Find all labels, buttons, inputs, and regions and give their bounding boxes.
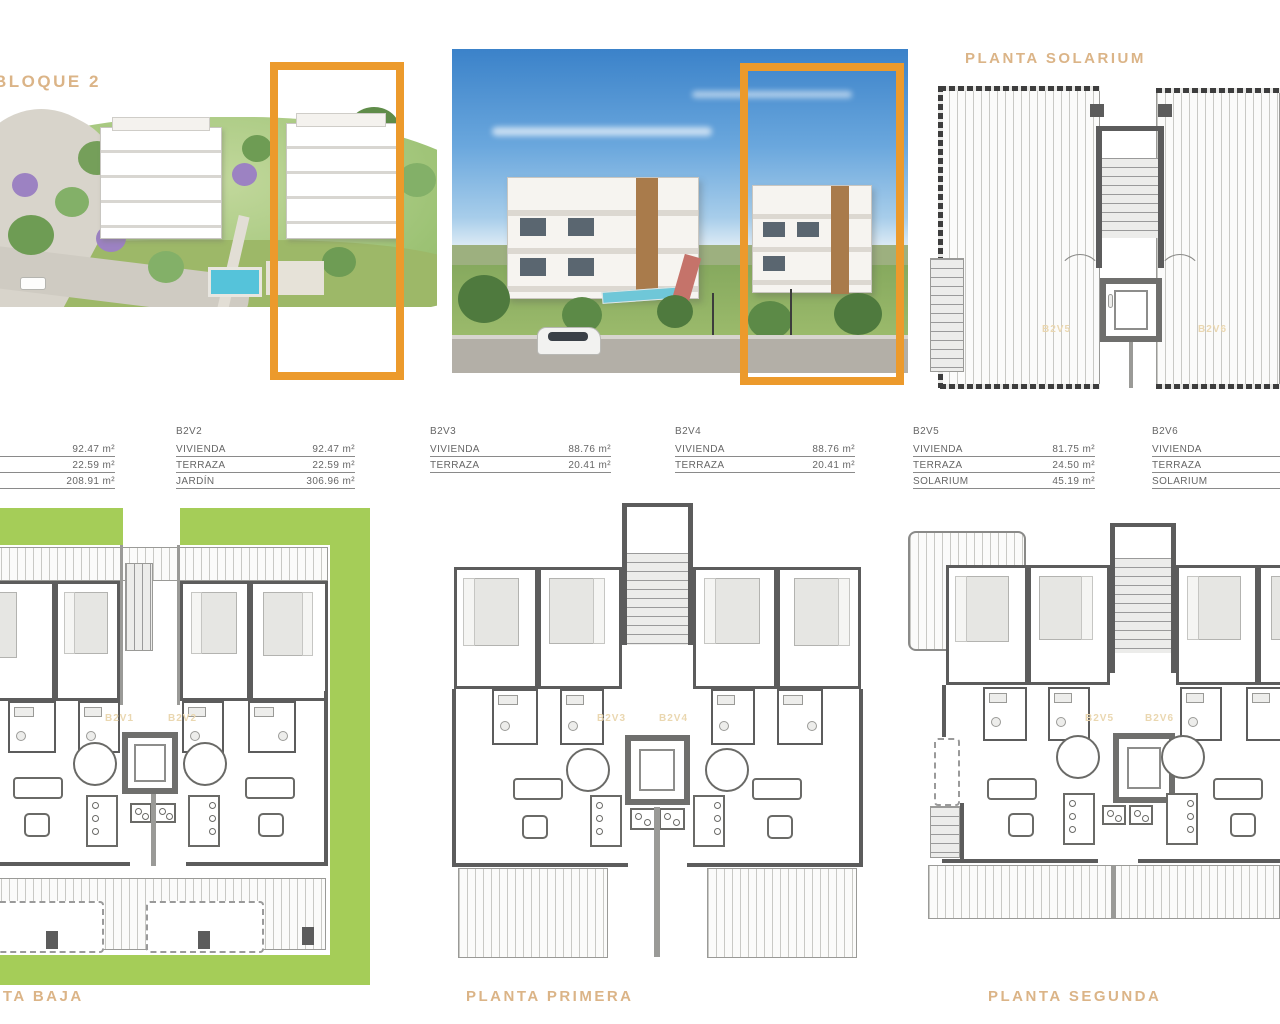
row-label: VIVIENDA: [1152, 444, 1202, 455]
unit-label: B2V6: [1145, 713, 1174, 724]
terrace-divider: [1111, 865, 1116, 919]
row-label: TERRAZA: [1152, 460, 1201, 471]
flowering-bush: [12, 173, 38, 197]
row-value: 88.76 m²: [568, 444, 611, 455]
stove-counter: [1129, 805, 1153, 825]
sofa: [13, 777, 63, 799]
unit-table-b2v3: B2V3 VIVIENDA88.76 m² TERRAZA20.41 m²: [430, 426, 611, 473]
toilet-fixture: [1108, 294, 1113, 308]
bathroom: [492, 689, 538, 745]
second-floor-title: PLANTA SEGUNDA: [988, 988, 1161, 1005]
unit-table-name: B2V6: [1152, 426, 1280, 441]
table-row: 22.59 m²: [0, 457, 115, 473]
table-row: 92.47 m²: [0, 441, 115, 457]
row-label: JARDÍN: [176, 476, 215, 487]
row-label: SOLARIUM: [913, 476, 968, 487]
unit-label: B2V5: [1042, 324, 1071, 335]
row-label: TERRAZA: [913, 460, 962, 471]
terrace: [458, 868, 608, 958]
unit-label: B2V4: [659, 713, 688, 724]
unit-table-name: B2V5: [913, 426, 1095, 441]
ground-floor-title: PLANTA BAJA: [0, 988, 84, 1005]
outer-wall: [452, 689, 456, 867]
unit-label: B2V3: [597, 713, 626, 724]
corridor-wall: [120, 545, 123, 705]
row-label: TERRAZA: [430, 460, 479, 471]
tree: [242, 135, 272, 162]
armchair: [1230, 813, 1256, 837]
bedroom: [250, 581, 328, 701]
brochure-page: { "headings": { "block": "BLOQUE 2", "so…: [0, 0, 1280, 1024]
bedroom: [946, 565, 1028, 685]
bathroom: [777, 689, 823, 745]
dining-table: [1161, 735, 1205, 779]
divider-wall: [151, 794, 156, 866]
row-value: 208.91 m²: [66, 476, 115, 487]
row-label: TERRAZA: [176, 460, 225, 471]
staircase: [1115, 558, 1171, 653]
second-floor-plan: B2V5 B2V6: [898, 503, 1280, 973]
bathroom: [248, 701, 296, 753]
table-row: VIVIENDA88.76 m²: [675, 441, 855, 457]
table-row: TERRAZA24.50 m²: [913, 457, 1095, 473]
full-width-terrace: [928, 865, 1280, 919]
roof-terrace: [940, 88, 1100, 388]
dining-table: [183, 742, 227, 786]
row-value: 20.41 m²: [568, 460, 611, 471]
swimming-pool: [208, 267, 262, 297]
stove-counter: [630, 808, 656, 830]
stair-tower-wall: [622, 503, 693, 507]
unit-label: B2V5: [1085, 713, 1114, 724]
row-label: VIVIENDA: [176, 444, 226, 455]
armchair: [1008, 813, 1034, 837]
sofa: [987, 778, 1037, 800]
unit-label: B2V6: [1198, 324, 1227, 335]
elevator-shaft: [122, 732, 178, 794]
bathroom: [1180, 687, 1222, 741]
wood-accent-column: [636, 178, 658, 300]
kitchen-island: [590, 795, 622, 847]
unit-table-name: B2V4: [675, 426, 855, 441]
divider-wall: [654, 807, 660, 957]
outer-wall: [687, 863, 863, 867]
bathroom: [1246, 687, 1280, 741]
gate-post: [198, 931, 210, 949]
window: [520, 218, 546, 236]
outer-wall: [0, 862, 130, 866]
stove-counter: [1102, 805, 1126, 825]
solarium-floor-plan: B2V5 B2V6: [930, 78, 1280, 396]
row-value: 81.75 m²: [1052, 444, 1095, 455]
unit-table-b2v5: B2V5 VIVIENDA81.75 m² TERRAZA24.50 m² SO…: [913, 426, 1095, 489]
stove-counter: [659, 808, 685, 830]
row-label: VIVIENDA: [430, 444, 480, 455]
outer-wall: [324, 691, 328, 866]
stairwell-wall: [1096, 126, 1164, 131]
unit-table-b2v6-cropped: B2V6 VIVIENDA TERRAZA SOLARIUM: [1152, 426, 1280, 489]
corridor-wall: [177, 545, 180, 705]
unit-table-cropped: 92.47 m² 22.59 m² 208.91 m²: [0, 426, 115, 489]
bedroom: [180, 581, 250, 701]
unit-label: B2V1: [105, 713, 134, 724]
window: [568, 218, 594, 236]
bedroom: [0, 581, 55, 701]
window: [568, 258, 594, 276]
row-value: 306.96 m²: [306, 476, 355, 487]
stove-counter: [154, 803, 176, 823]
stairwell-wall: [1110, 523, 1176, 527]
external-staircase: [930, 258, 964, 372]
armchair: [522, 815, 548, 839]
gate-post: [46, 931, 58, 949]
block-title: BLOQUE 2: [0, 72, 101, 92]
lamp-post: [712, 293, 714, 337]
entrance-path: [123, 508, 180, 545]
parapet-wall: [940, 86, 1100, 91]
front-terrace: [0, 547, 328, 581]
kitchen-island: [1166, 793, 1198, 845]
row-value: 92.47 m²: [72, 444, 115, 455]
tree: [8, 215, 54, 255]
staircase: [125, 563, 153, 651]
outer-wall: [1138, 859, 1280, 863]
dining-table: [1056, 735, 1100, 779]
row-value: 24.50 m²: [1052, 460, 1095, 471]
bedroom: [454, 567, 538, 689]
bathroom: [8, 701, 56, 753]
flowering-bush: [232, 163, 257, 186]
table-row: VIVIENDA: [1152, 441, 1280, 457]
kitchen-island: [188, 795, 220, 847]
row-value: 92.47 m²: [312, 444, 355, 455]
sofa: [752, 778, 802, 800]
table-row: VIVIENDA92.47 m²: [176, 441, 355, 457]
row-value: 88.76 m²: [812, 444, 855, 455]
bathroom: [711, 689, 755, 745]
dining-table: [73, 742, 117, 786]
staircase: [1102, 158, 1158, 238]
dining-table: [566, 748, 610, 792]
elevator-car: [1114, 290, 1148, 330]
row-value: 45.19 m²: [1052, 476, 1095, 487]
table-row: VIVIENDA81.75 m²: [913, 441, 1095, 457]
table-row: 208.91 m²: [0, 473, 115, 489]
stairwell-wall: [1158, 126, 1164, 268]
outer-wall: [186, 862, 328, 866]
unit-label: B2V2: [168, 713, 197, 724]
table-row: VIVIENDA88.76 m²: [430, 441, 611, 457]
highlight-rectangle: [270, 62, 404, 380]
row-label: SOLARIUM: [1152, 476, 1207, 487]
highlight-rectangle: [740, 63, 904, 385]
tree: [55, 187, 89, 217]
row-label: VIVIENDA: [913, 444, 963, 455]
outer-wall: [452, 863, 628, 867]
unit-table-name: B2V3: [430, 426, 611, 441]
table-row: JARDÍN306.96 m²: [176, 473, 355, 489]
table-row: TERRAZA20.41 m²: [430, 457, 611, 473]
bathroom: [1048, 687, 1090, 741]
apartment-building: [507, 177, 699, 299]
bedroom: [693, 567, 777, 689]
outer-wall: [942, 859, 1098, 863]
parapet-wall: [1156, 88, 1280, 93]
table-row: TERRAZA20.41 m²: [675, 457, 855, 473]
table-row: SOLARIUM45.19 m²: [913, 473, 1095, 489]
apartment-building: [100, 127, 222, 239]
sofa: [1213, 778, 1263, 800]
car: [20, 277, 46, 290]
unit-table-b2v2: B2V2 VIVIENDA92.47 m² TERRAZA22.59 m² JA…: [176, 426, 355, 489]
ground-floor-plan: B2V1 B2V2: [0, 503, 370, 985]
elevator-shaft: [625, 735, 690, 805]
window: [520, 258, 546, 276]
bedroom: [777, 567, 861, 689]
car: [537, 327, 601, 355]
table-row: TERRAZA22.59 m²: [176, 457, 355, 473]
pillar: [1090, 104, 1104, 117]
bedroom: [1176, 565, 1258, 685]
door-swing-arc: [1058, 254, 1102, 298]
divider-wall: [1129, 342, 1133, 388]
first-floor-plan: B2V3 B2V4: [440, 503, 875, 968]
outer-wall: [859, 689, 863, 867]
unit-table-name: B2V2: [176, 426, 355, 441]
tree: [148, 251, 184, 283]
unit-table-b2v4: B2V4 VIVIENDA88.76 m² TERRAZA20.41 m²: [675, 426, 855, 473]
first-floor-title: PLANTA PRIMERA: [466, 988, 634, 1005]
kitchen-island: [693, 795, 725, 847]
parapet-wall: [1156, 384, 1280, 389]
outer-wall: [942, 685, 946, 737]
outer-wall: [960, 803, 964, 863]
cloud: [492, 127, 712, 136]
table-row: TERRAZA: [1152, 457, 1280, 473]
sofa: [513, 778, 563, 800]
staircase: [627, 553, 688, 645]
terrace: [707, 868, 857, 958]
armchair: [24, 813, 50, 837]
tree: [657, 295, 693, 328]
bedroom: [1028, 565, 1110, 685]
armchair: [767, 815, 793, 839]
row-label: TERRAZA: [675, 460, 724, 471]
stove-counter: [130, 803, 152, 823]
elevator-shaft: [1100, 278, 1162, 342]
pillar: [1158, 104, 1172, 117]
unit-table-name: [0, 426, 115, 441]
roof-terrace: [1156, 90, 1280, 388]
bathroom: [983, 687, 1027, 741]
external-staircase: [930, 806, 960, 858]
kitchen-island: [1063, 793, 1095, 845]
stair-void: [934, 738, 960, 806]
row-value: 20.41 m²: [812, 460, 855, 471]
solarium-title: PLANTA SOLARIUM: [965, 50, 1146, 67]
bedroom: [1258, 565, 1280, 685]
armchair: [258, 813, 284, 837]
table-row: SOLARIUM: [1152, 473, 1280, 489]
parapet-wall: [940, 384, 1100, 389]
kitchen-island: [86, 795, 118, 847]
car-windows: [548, 332, 588, 341]
row-label: VIVIENDA: [675, 444, 725, 455]
tree: [458, 275, 510, 323]
door-swing-arc: [1158, 254, 1202, 298]
row-value: 22.59 m²: [72, 460, 115, 471]
dining-table: [705, 748, 749, 792]
gate-post: [302, 927, 314, 945]
building-rooftop: [112, 117, 210, 131]
bedroom: [538, 567, 622, 689]
bedroom: [55, 581, 120, 701]
sofa: [245, 777, 295, 799]
row-value: 22.59 m²: [312, 460, 355, 471]
